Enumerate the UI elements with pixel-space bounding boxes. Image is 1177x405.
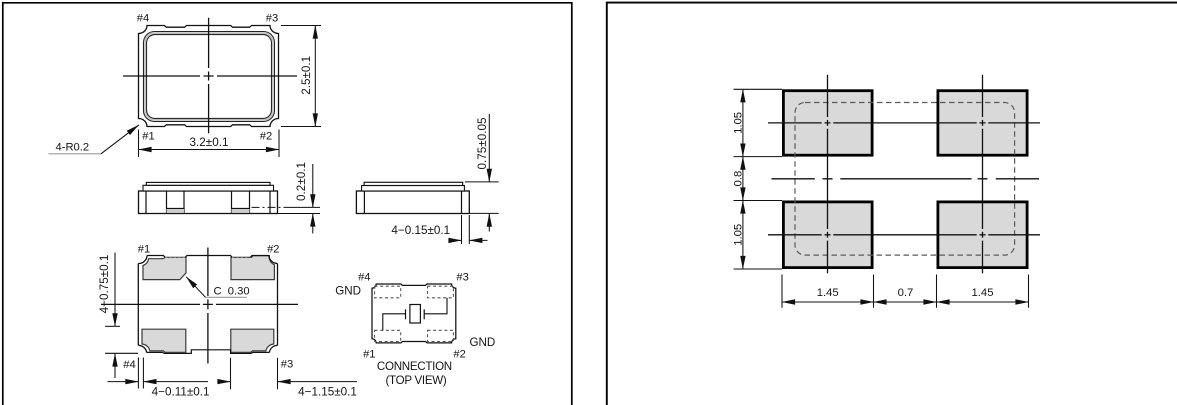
svg-text:#3: #3: [456, 272, 468, 284]
svg-text:#4: #4: [358, 272, 370, 284]
svg-text:0.8: 0.8: [732, 171, 744, 187]
svg-text:1.45: 1.45: [972, 287, 994, 299]
svg-text:(TOP VIEW): (TOP VIEW): [386, 374, 447, 387]
svg-text:C 0.30: C 0.30: [214, 285, 250, 297]
svg-text:#2: #2: [453, 348, 465, 360]
svg-text:1.05: 1.05: [732, 224, 744, 246]
svg-text:0.75±0.05: 0.75±0.05: [476, 117, 489, 169]
svg-text:#2: #2: [260, 131, 272, 143]
svg-text:4−1.15±0.1: 4−1.15±0.1: [298, 385, 357, 398]
svg-text:#2: #2: [267, 243, 279, 255]
svg-text:#1: #1: [138, 243, 150, 255]
svg-text:4−0.11±0.1: 4−0.11±0.1: [152, 385, 210, 398]
svg-text:4−0.15±0.1: 4−0.15±0.1: [391, 224, 450, 237]
svg-text:4-R0.2: 4-R0.2: [56, 142, 90, 154]
svg-text:#3: #3: [281, 359, 293, 371]
svg-text:0.2±0.1: 0.2±0.1: [295, 162, 308, 201]
svg-text:CONNECTION: CONNECTION: [377, 360, 452, 373]
svg-text:0.7: 0.7: [898, 287, 914, 299]
svg-text:#4: #4: [123, 359, 135, 371]
svg-text:3.2±0.1: 3.2±0.1: [190, 136, 229, 149]
svg-text:#3: #3: [266, 13, 278, 25]
svg-text:#4: #4: [137, 13, 149, 25]
svg-text:#1: #1: [142, 131, 154, 143]
svg-text:4−0.75±0.1: 4−0.75±0.1: [98, 255, 111, 314]
svg-text:2.5±0.1: 2.5±0.1: [300, 56, 313, 95]
svg-text:1.05: 1.05: [732, 112, 744, 134]
svg-text:1.45: 1.45: [817, 287, 839, 299]
svg-text:GND: GND: [335, 284, 361, 297]
svg-text:#1: #1: [363, 348, 375, 360]
svg-text:GND: GND: [470, 336, 496, 349]
